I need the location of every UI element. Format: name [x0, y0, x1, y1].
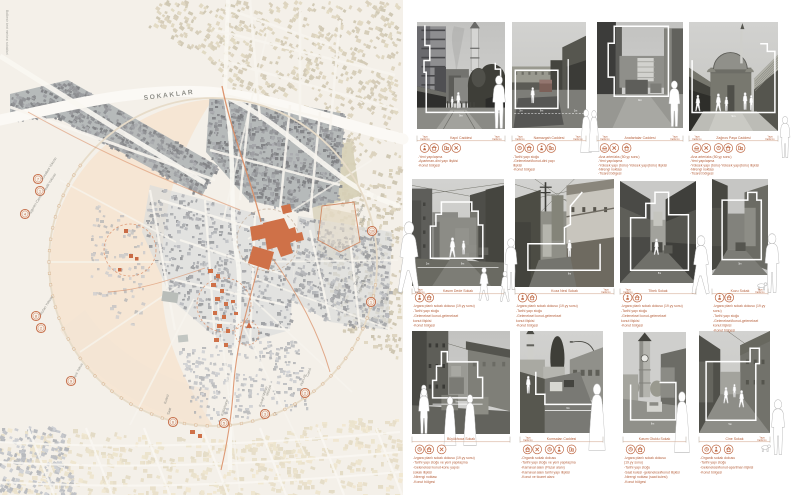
- svg-text:-Konut ve ticaret alanı: -Konut ve ticaret alanı: [521, 475, 554, 479]
- svg-text:-Geleneksel/konut-geleneksel: -Geleneksel/konut-geleneksel: [713, 319, 759, 323]
- svg-text:5m: 5m: [729, 423, 732, 426]
- svg-text:Namazgah Caddesi: Namazgah Caddesi: [534, 136, 565, 140]
- svg-text:6m: 6m: [568, 273, 571, 276]
- svg-text:7: 7: [37, 177, 39, 181]
- svg-text:9m: 9m: [732, 114, 737, 118]
- svg-text:Kaldırımı: Kaldırımı: [573, 138, 583, 141]
- svg-text:-Konut bölgesi: -Konut bölgesi: [700, 470, 722, 474]
- svg-text:Koza Nesl Sokak: Koza Nesl Sokak: [551, 289, 578, 293]
- svg-text:sonu): sonu): [713, 309, 722, 313]
- svg-text:-Izgara planlı sokak dokusu (1: -Izgara planlı sokak dokusu (19.yy sonu): [621, 304, 683, 308]
- svg-text:-Nirengi noktası: -Nirengi noktası: [413, 475, 437, 479]
- svg-text:Kaldırımı: Kaldırımı: [492, 138, 502, 141]
- svg-text:-Geleneksel konut-konu yapısı: -Geleneksel konut-konu yapısı: [413, 466, 459, 470]
- svg-text:(19.yy sonu): (19.yy sonu): [624, 461, 643, 465]
- svg-text:4: 4: [24, 212, 26, 216]
- svg-text:6: 6: [172, 420, 174, 424]
- svg-text:-Tarihi yapı stoğu ve yeni yap: -Tarihi yapı stoğu ve yeni yapılaşma: [521, 461, 576, 465]
- svg-text:Kaldırımı: Kaldırımı: [757, 439, 767, 442]
- svg-text:Kaldırımı: Kaldırımı: [670, 138, 680, 141]
- svg-text:1: 1: [39, 189, 41, 193]
- svg-text:konut ilişkisi: konut ilişkisi: [413, 319, 432, 323]
- svg-text:2m: 2m: [426, 263, 429, 266]
- svg-text:Kasım Oluklu Sokak: Kasım Oluklu Sokak: [639, 437, 671, 441]
- svg-text:10: 10: [370, 229, 374, 233]
- svg-text:6m: 6m: [566, 407, 569, 410]
- svg-text:Zağnos Paşa Caddesi: Zağnos Paşa Caddesi: [716, 136, 751, 140]
- svg-text:-Konut bölgesi: -Konut bölgesi: [513, 167, 535, 171]
- svg-text:-Karnaval alanı (Pazar alanı): -Karnaval alanı (Pazar alanı): [521, 466, 565, 470]
- svg-text:konut ilişkisi: konut ilişkisi: [516, 319, 535, 323]
- svg-text:Kaldırımı: Kaldırımı: [600, 138, 610, 141]
- svg-text:-Konut bölgesi: -Konut bölgesi: [413, 324, 435, 328]
- svg-text:-Izgara planlı sokak dokusu (1: -Izgara planlı sokak dokusu (19.yy sonu): [413, 304, 475, 308]
- svg-text:9: 9: [70, 379, 72, 383]
- svg-text:-Saat kulesi -geleneksel/konut: -Saat kulesi -geleneksel/konut ilişkisi: [624, 470, 680, 474]
- svg-text:Kaldırımı: Kaldırımı: [515, 138, 525, 141]
- svg-text:-Izgara planlı sokak dokusu: -Izgara planlı sokak dokusu: [624, 456, 666, 460]
- svg-text:-Tarihi yapı stoğu ve yeni yap: -Tarihi yapı stoğu ve yeni yapılaşma: [413, 461, 468, 465]
- svg-text:sokak ilişkisi: sokak ilişkisi: [413, 470, 432, 474]
- svg-text:-Konut bölgesi: -Konut bölgesi: [413, 480, 435, 484]
- svg-text:Kaldırımı: Kaldırımı: [601, 291, 611, 294]
- svg-text:5m: 5m: [658, 272, 661, 275]
- svg-text:-Tarihi yapı stoğu: -Tarihi yapı stoğu: [516, 309, 542, 313]
- svg-text:6m: 6m: [651, 422, 654, 425]
- svg-text:-Geleneksel/konut-apartman ili: -Geleneksel/konut-apartman ilişkisi: [700, 466, 754, 470]
- svg-text:-Konut bölgesi: -Konut bölgesi: [621, 324, 643, 328]
- svg-text:Kumsalan Caddesi: Kumsalan Caddesi: [547, 437, 577, 441]
- svg-text:-Nirengi noktası (saat kulesi): -Nirengi noktası (saat kulesi): [624, 475, 668, 479]
- svg-text:9m: 9m: [540, 110, 543, 113]
- svg-text:3: 3: [264, 412, 266, 416]
- svg-text:Kasım Dede Sokak: Kasım Dede Sokak: [443, 289, 473, 293]
- svg-text:8: 8: [35, 314, 37, 318]
- svg-text:konut ilişkisi: konut ilişkisi: [713, 324, 732, 328]
- svg-text:5: 5: [223, 421, 225, 425]
- svg-text:-Konut bölgesi: -Konut bölgesi: [624, 480, 646, 484]
- svg-text:-Geleneksel konut-geleneksel: -Geleneksel konut-geleneksel: [621, 314, 667, 318]
- svg-text:2: 2: [40, 326, 42, 330]
- svg-text:-Tarihi yapı stoğu: -Tarihi yapı stoğu: [700, 461, 726, 465]
- svg-text:2m: 2m: [519, 110, 522, 113]
- svg-text:Büyükhoca Sokak: Büyükhoca Sokak: [447, 437, 475, 441]
- svg-text:9m: 9m: [461, 263, 464, 266]
- svg-text:Anafartalar Caddesi: Anafartalar Caddesi: [625, 136, 656, 140]
- svg-text:-Organik sokak dokusu: -Organik sokak dokusu: [521, 456, 556, 460]
- svg-text:-Izgara planlı sokak dokusu (1: -Izgara planlı sokak dokusu (19.yy sonu): [516, 304, 578, 308]
- svg-text:5m: 5m: [738, 262, 741, 265]
- svg-text:Kuzu Sokak: Kuzu Sokak: [731, 289, 750, 293]
- svg-text:Kapıl Caddesi: Kapıl Caddesi: [450, 136, 472, 140]
- svg-text:Kaldırımı: Kaldırımı: [692, 138, 702, 141]
- svg-text:-Tarihi yapı stoğu: -Tarihi yapı stoğu: [713, 314, 739, 318]
- svg-text:-Izgara planlı sokak dokusu (1: -Izgara planlı sokak dokusu (19.yy sonu): [413, 456, 475, 460]
- svg-text:-Izgara planlı sokak dokusu (1: -Izgara planlı sokak dokusu (19.yy: [713, 304, 765, 308]
- svg-text:Balikesir kent merkezi sokakla: Balikesir kent merkezi sokaklari: [5, 10, 9, 55]
- svg-text:9m: 9m: [455, 401, 458, 404]
- svg-text:Kaldırımı: Kaldırımı: [755, 291, 765, 294]
- svg-text:-Karnaval alanı tarihi yapı il: -Karnaval alanı tarihi yapı ilişkisi: [521, 470, 570, 474]
- svg-text:9m: 9m: [459, 114, 464, 118]
- svg-text:-Tarihi yapı stoğu: -Tarihi yapı stoğu: [413, 309, 439, 313]
- svg-text:Cine Sokak: Cine Sokak: [726, 437, 744, 441]
- svg-text:-Geleneksel konut-geleneksel: -Geleneksel konut-geleneksel: [413, 314, 459, 318]
- svg-text:2m: 2m: [574, 110, 577, 113]
- svg-text:Kaldırımı: Kaldırımı: [523, 439, 533, 442]
- svg-text:-Ticaret bölgesi: -Ticaret bölgesi: [598, 171, 622, 175]
- svg-text:Kaldırımı: Kaldırımı: [765, 138, 775, 141]
- svg-text:9m: 9m: [638, 98, 643, 102]
- svg-text:konut ilişkisi: konut ilişkisi: [621, 319, 640, 323]
- svg-text:2: 2: [304, 391, 306, 395]
- svg-text:Kaldırımı: Kaldırımı: [420, 138, 430, 141]
- svg-text:-Organik sokak dokusu: -Organik sokak dokusu: [700, 456, 735, 460]
- svg-text:-Geleneksel konut-geleneksel: -Geleneksel konut-geleneksel: [516, 314, 562, 318]
- svg-text:-Konut bölgesi: -Konut bölgesi: [418, 163, 440, 167]
- svg-text:-Konut bölgesi: -Konut bölgesi: [713, 328, 735, 332]
- svg-text:-Konut bölgesi: -Konut bölgesi: [516, 324, 538, 328]
- svg-text:1: 1: [370, 300, 372, 304]
- svg-text:-Tarihi yapı stoğu: -Tarihi yapı stoğu: [621, 309, 647, 313]
- svg-text:Tibek Sokak: Tibek Sokak: [648, 289, 667, 293]
- svg-text:-Tarihi yapı stoğu: -Tarihi yapı stoğu: [624, 466, 650, 470]
- svg-text:-Ticaret bölgesi: -Ticaret bölgesi: [690, 171, 714, 175]
